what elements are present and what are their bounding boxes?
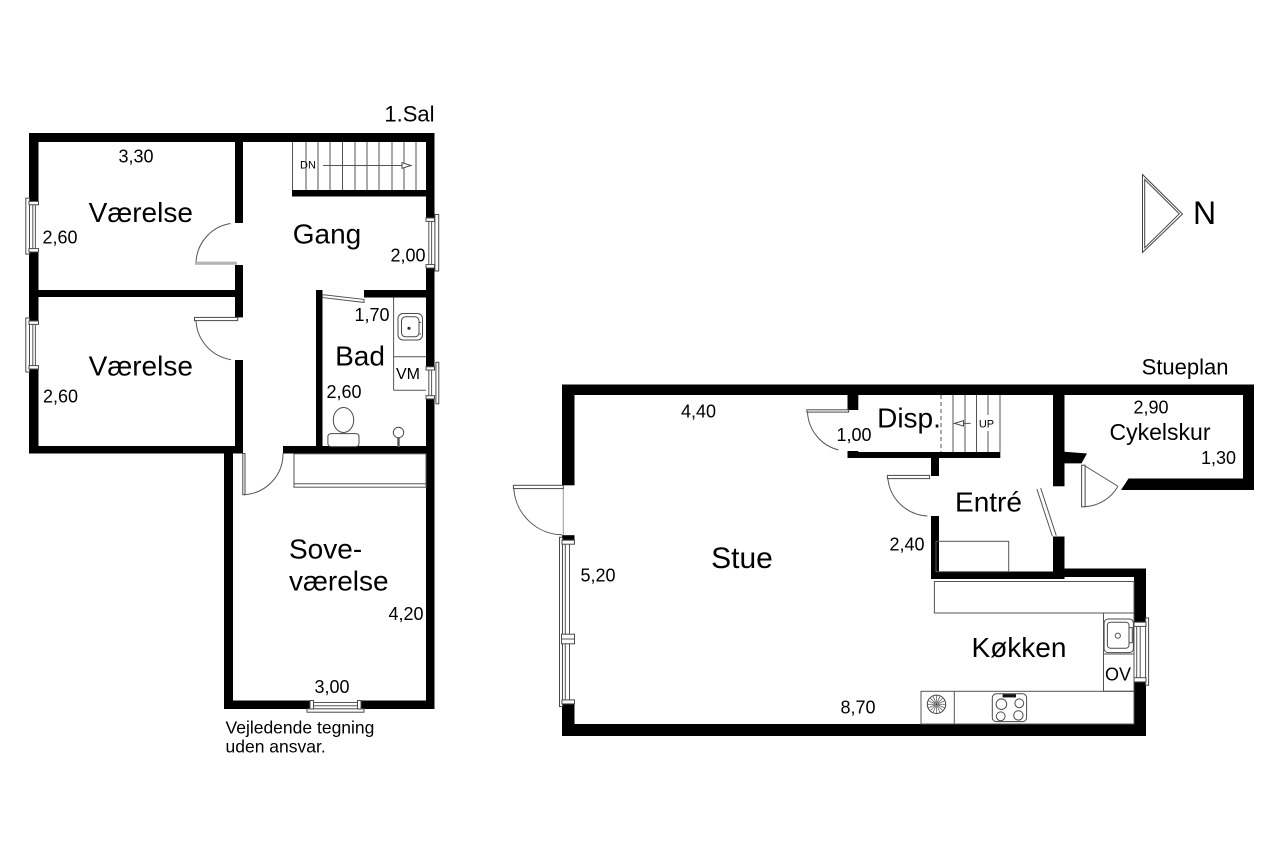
svg-text:Cykelskur: Cykelskur bbox=[1110, 419, 1211, 445]
svg-text:2,60: 2,60 bbox=[43, 387, 78, 407]
svg-text:værelse: værelse bbox=[289, 566, 389, 597]
svg-text:2,00: 2,00 bbox=[390, 246, 425, 266]
svg-text:4,20: 4,20 bbox=[388, 604, 423, 624]
svg-text:3,00: 3,00 bbox=[314, 677, 349, 697]
svg-text:Køkken: Køkken bbox=[972, 632, 1067, 663]
svg-text:UP: UP bbox=[979, 419, 994, 431]
svg-text:Vejledende tegning: Vejledende tegning bbox=[226, 718, 375, 738]
svg-text:8,70: 8,70 bbox=[840, 698, 875, 718]
svg-text:N: N bbox=[1193, 195, 1216, 231]
svg-text:Disp.: Disp. bbox=[877, 403, 941, 434]
svg-text:Værelse: Værelse bbox=[89, 197, 193, 228]
svg-text:1,00: 1,00 bbox=[836, 425, 871, 445]
svg-text:Stueplan: Stueplan bbox=[1142, 355, 1229, 380]
svg-text:2,60: 2,60 bbox=[42, 228, 77, 248]
svg-text:uden ansvar.: uden ansvar. bbox=[226, 737, 326, 757]
svg-text:2,60: 2,60 bbox=[326, 382, 361, 402]
svg-text:5,20: 5,20 bbox=[580, 566, 615, 586]
svg-text:2,90: 2,90 bbox=[1133, 398, 1168, 418]
svg-text:Entré: Entré bbox=[955, 487, 1022, 518]
svg-text:DN: DN bbox=[300, 160, 316, 172]
svg-text:3,30: 3,30 bbox=[118, 147, 153, 167]
svg-text:Gang: Gang bbox=[293, 219, 362, 250]
svg-text:1,30: 1,30 bbox=[1201, 448, 1236, 468]
svg-text:OV: OV bbox=[1105, 665, 1131, 685]
svg-text:1,70: 1,70 bbox=[354, 305, 389, 325]
svg-text:4,40: 4,40 bbox=[681, 402, 716, 422]
svg-text:Stue: Stue bbox=[711, 542, 773, 575]
svg-text:Sove-: Sove- bbox=[289, 534, 362, 565]
svg-text:2,40: 2,40 bbox=[889, 535, 924, 555]
svg-text:Værelse: Værelse bbox=[89, 350, 193, 381]
svg-text:VM: VM bbox=[396, 366, 420, 383]
svg-text:1.Sal: 1.Sal bbox=[384, 102, 434, 127]
svg-text:Bad: Bad bbox=[335, 340, 385, 371]
